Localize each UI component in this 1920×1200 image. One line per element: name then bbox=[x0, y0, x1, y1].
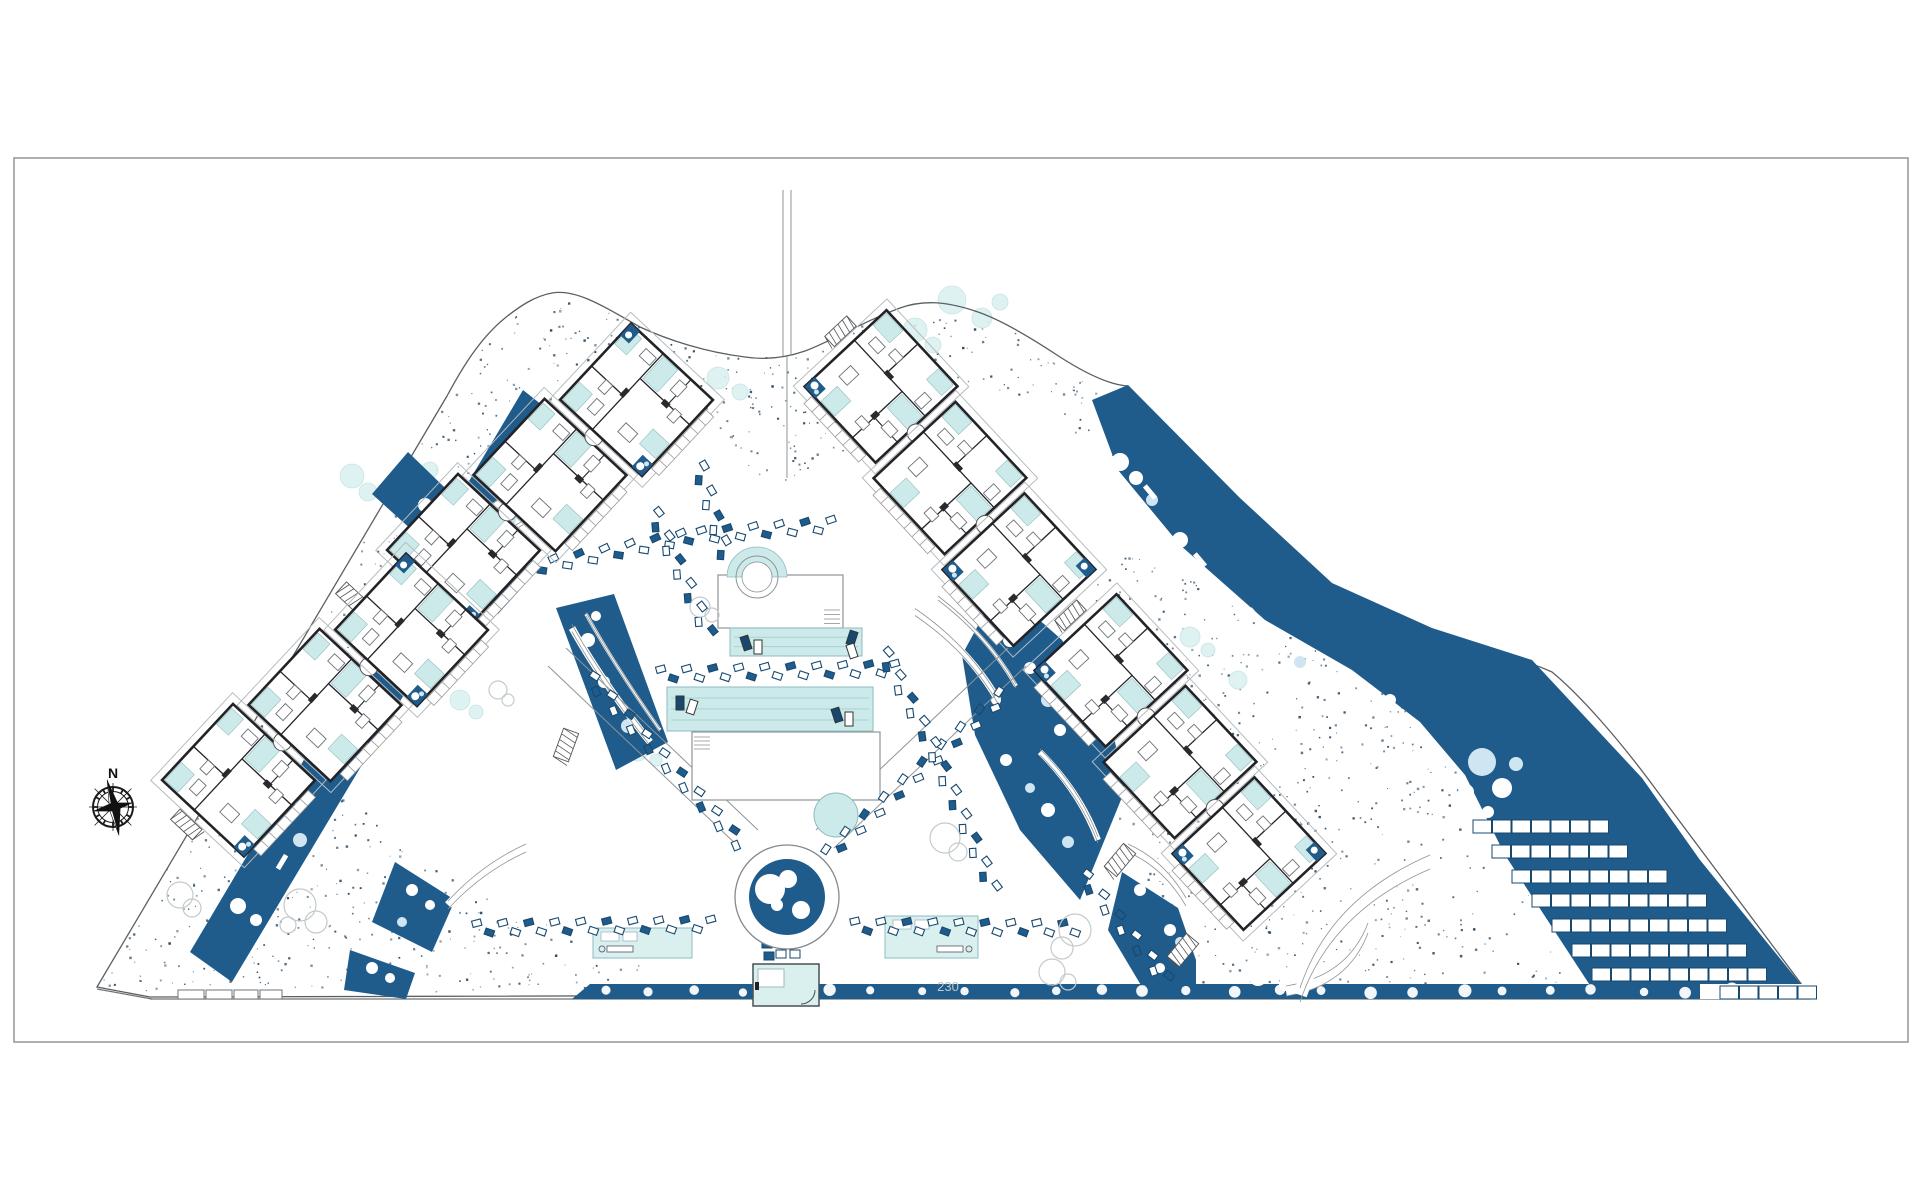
compass-north-label: N bbox=[108, 765, 118, 781]
site-plan-drawing: 230N bbox=[0, 0, 1920, 1200]
site-plan-sheet: 230N bbox=[0, 0, 1920, 1200]
dimension-label: 230 bbox=[937, 979, 959, 994]
dimension-text: 230 bbox=[937, 979, 959, 994]
spa-circle-plaza bbox=[735, 845, 839, 949]
